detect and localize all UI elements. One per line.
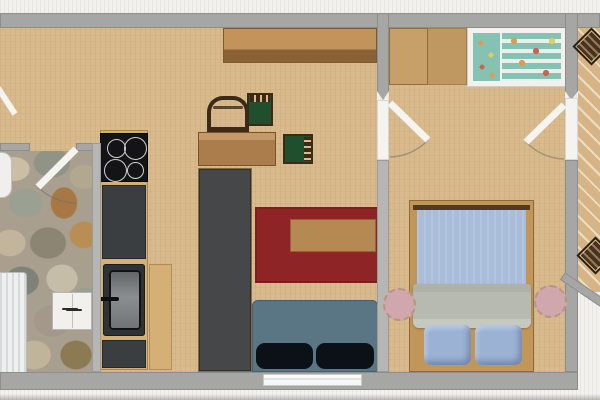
radiator[interactable] [0,272,27,374]
wall-bedroom-balcony [565,13,578,100]
low-worktop[interactable] [149,264,172,370]
burner [127,162,144,179]
wall-top [0,13,600,28]
kitchen-sink[interactable] [103,264,145,336]
double-bed[interactable] [409,200,534,372]
crib-bedding-right [502,33,561,81]
wash-basin[interactable] [0,152,12,198]
stool-left[interactable] [383,288,416,321]
chair-back-rail [247,93,273,104]
wall-bathroom-top [0,143,30,151]
wall-bedroom-balcony [565,160,578,372]
sideboard[interactable] [223,28,377,63]
bathroom-cabinet[interactable] [52,292,92,330]
wall-living-bedroom [377,13,389,100]
duvet [417,210,526,288]
wooden-armchair[interactable] [207,96,249,136]
chair-back-rail [302,134,313,164]
green-chair-2[interactable] [283,134,313,164]
sofa-seat-cushion [256,343,313,369]
photo-vignette [0,394,600,400]
bedroom-door-jamb [377,100,389,160]
crib-bedding-left [473,33,500,81]
living-room-window[interactable] [263,374,362,386]
counter-segment [102,340,146,368]
counter-segment [102,185,146,259]
floor-plan-canvas [0,0,600,400]
burner [104,159,127,182]
wardrobe[interactable] [389,28,467,85]
sofa[interactable] [252,300,378,372]
wall-living-bedroom [377,160,389,372]
folded-blanket [413,284,531,328]
desk[interactable] [198,132,276,166]
pillow [475,325,522,365]
green-chair-1[interactable] [247,93,273,126]
sofa-seat-cushion [316,343,374,369]
tall-dark-cabinet[interactable] [199,169,251,371]
crib[interactable] [467,27,567,87]
wall-bathroom-right [92,143,101,372]
pillow [424,325,471,365]
stool-right[interactable] [534,285,567,318]
coffee-table[interactable] [290,219,376,252]
burner [124,137,147,160]
stove-cooktop[interactable] [100,133,148,182]
balcony-door-jamb [565,98,578,160]
